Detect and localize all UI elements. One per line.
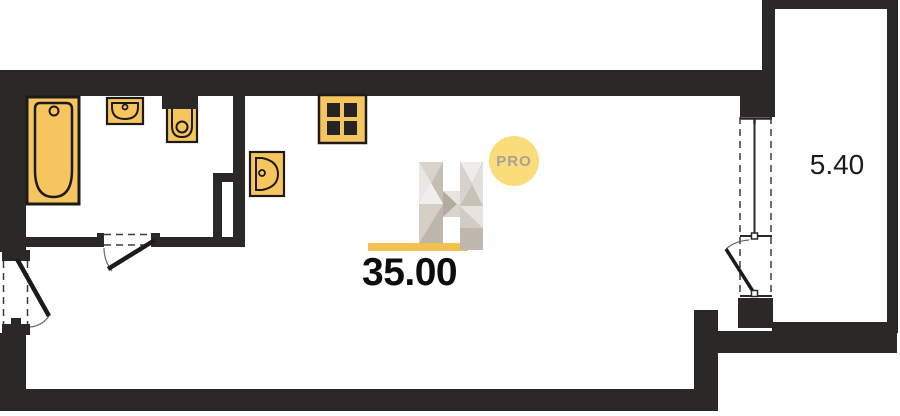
balcony-area-label: 5.40 [787, 149, 887, 181]
bathroom-door-swing-icon [104, 235, 155, 272]
toilet-icon [162, 93, 198, 142]
pro-badge-label: PRO [496, 153, 532, 170]
entrance-door-swing-icon [4, 259, 50, 327]
stove-burners-icon [319, 95, 366, 143]
balcony-window-door-icon [726, 117, 772, 297]
main-area-label: 35.00 [362, 251, 502, 295]
bathtub-icon [27, 97, 79, 204]
floorplan: PRO 35.00 5.40 [0, 0, 900, 416]
corner-sink-icon [250, 152, 284, 196]
wall-sink-icon [107, 98, 143, 124]
h-logo-watermark [419, 162, 483, 250]
pro-badge: PRO [489, 136, 539, 186]
floorplan-linework [0, 0, 900, 416]
